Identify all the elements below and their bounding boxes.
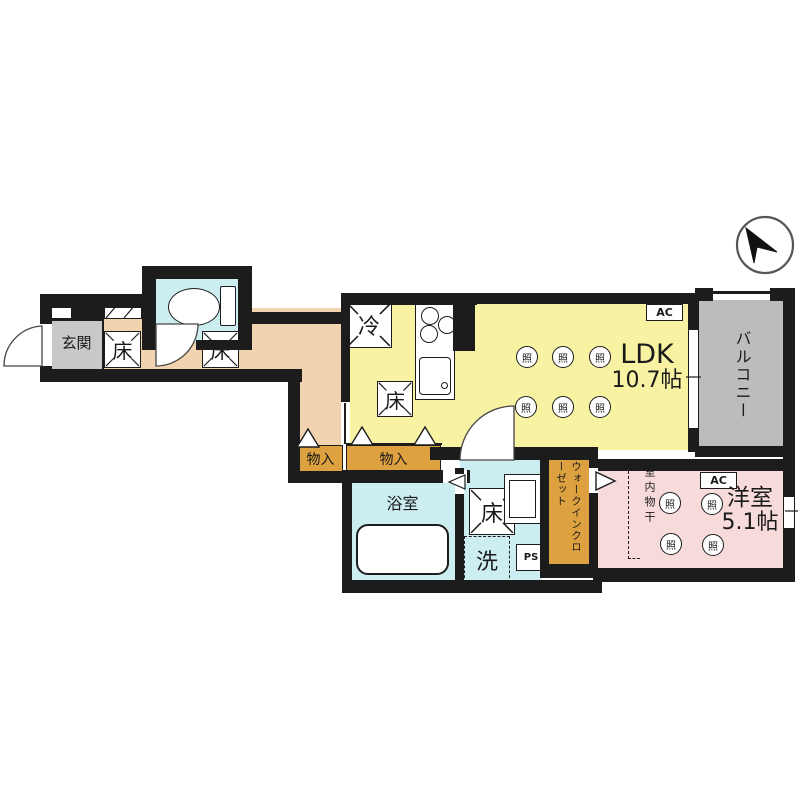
bedroom-size: 5.1帖 xyxy=(710,511,790,535)
wall xyxy=(593,568,793,582)
light-glyph: 照 xyxy=(522,350,532,365)
wall xyxy=(695,446,793,457)
kitchen-sink xyxy=(419,357,451,395)
storage-closet-2: 物入 xyxy=(346,445,441,473)
wall xyxy=(196,340,252,350)
genkan-room: 玄関 xyxy=(50,312,103,372)
ceiling-light: 照 xyxy=(516,346,538,368)
wall xyxy=(475,293,695,304)
wall xyxy=(250,312,349,324)
sliding-door-leaf xyxy=(344,403,346,444)
light-glyph: 照 xyxy=(558,400,568,415)
storage-2-label: 物入 xyxy=(380,449,408,469)
compass-north-arrow xyxy=(746,228,777,263)
indoor-drying-label: 室内物干 xyxy=(641,466,657,562)
wall xyxy=(593,459,793,471)
bathroom-label: 浴室 xyxy=(350,490,455,514)
storage-closet-1: 物入 xyxy=(298,445,343,473)
indoor-drying-text: 室内物干 xyxy=(641,466,657,558)
floor-hatch-hall-1: 床 xyxy=(104,331,141,368)
ldk-storage-edge xyxy=(346,443,442,445)
ldk-size: 10.7帖 xyxy=(597,369,697,392)
storage-1-label: 物入 xyxy=(307,449,335,469)
ceiling-light: 照 xyxy=(701,493,723,515)
refrigerator-symbol: 冷 xyxy=(346,302,392,348)
indoor-drying-rail xyxy=(628,461,640,559)
ceiling-light: 照 xyxy=(552,346,574,368)
wall xyxy=(142,266,156,350)
kitchen-wall-stub xyxy=(453,293,475,351)
wall xyxy=(430,447,478,460)
ac-label: AC xyxy=(656,306,673,319)
toilet-bowl xyxy=(168,288,220,326)
balcony-rail xyxy=(713,291,770,294)
bathtub xyxy=(356,524,449,575)
vanity-basin xyxy=(509,480,536,518)
wall xyxy=(695,288,713,301)
wall xyxy=(589,447,598,577)
entrance-door-opening xyxy=(40,324,52,366)
ceiling-light: 照 xyxy=(552,396,574,418)
ceiling-light: 照 xyxy=(589,346,611,368)
balcony-label: バルコニー xyxy=(730,330,754,420)
wall xyxy=(288,369,300,483)
light-glyph: 照 xyxy=(707,497,717,512)
light-glyph: 照 xyxy=(708,538,718,553)
ceiling-light: 照 xyxy=(702,534,724,556)
sink-tap xyxy=(441,382,448,389)
ldk-label: LDK 10.7帖 xyxy=(597,341,697,392)
compass-circle xyxy=(737,217,793,273)
ceiling-light: 照 xyxy=(589,396,611,418)
floor-hatch-kitchen: 床 xyxy=(377,381,413,417)
wall xyxy=(342,580,602,593)
washer-label: 洗 xyxy=(476,544,498,576)
wall xyxy=(513,447,598,460)
walk-in-closet: ウォークインクローゼット xyxy=(547,457,591,567)
bath-door-gap xyxy=(455,474,464,494)
bedroom-door-opening xyxy=(589,468,598,493)
wic-label: ウォークインクローゼット xyxy=(554,461,584,563)
wall xyxy=(540,564,598,578)
wall xyxy=(342,470,352,592)
corridor-floor xyxy=(298,369,343,447)
balcony-label-wrap: バルコニー xyxy=(698,303,785,447)
stove-burner-3 xyxy=(420,325,438,343)
ps-label: PS xyxy=(524,552,539,563)
wall xyxy=(142,266,252,279)
light-glyph: 照 xyxy=(558,350,568,365)
light-glyph: 照 xyxy=(595,400,605,415)
light-glyph: 照 xyxy=(665,496,675,511)
genkan-step-line xyxy=(102,312,104,372)
toilet-tank xyxy=(220,286,236,326)
ceiling-light: 照 xyxy=(660,533,682,555)
genkan-label: 玄関 xyxy=(61,332,91,353)
light-glyph: 照 xyxy=(595,350,605,365)
wall xyxy=(341,294,350,402)
ceiling-light: 照 xyxy=(515,396,537,418)
entrance-door-arc xyxy=(4,326,42,366)
wall xyxy=(238,266,252,350)
wall xyxy=(40,369,302,382)
stove-burner-1 xyxy=(421,307,439,325)
bedroom-label: 洋室 5.1帖 xyxy=(710,486,790,535)
ceiling-light: 照 xyxy=(659,492,681,514)
ac-unit-ldk: AC xyxy=(646,304,683,321)
wall xyxy=(540,447,549,578)
wall xyxy=(142,340,160,350)
light-glyph: 照 xyxy=(521,400,531,415)
floor-plan: 玄関 ウォークインクローゼット 物入 物入 冷 床 床 床 xyxy=(0,0,800,800)
light-glyph: 照 xyxy=(666,537,676,552)
washing-machine-space: 洗 xyxy=(464,536,510,583)
ldk-name: LDK xyxy=(597,341,697,369)
wall xyxy=(40,294,146,308)
